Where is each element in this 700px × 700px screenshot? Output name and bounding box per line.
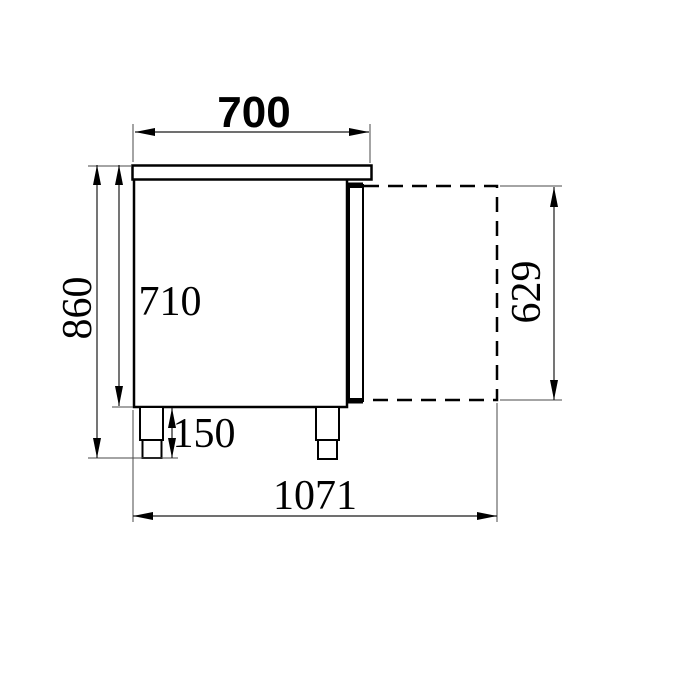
countertop (133, 166, 372, 180)
door-panel (349, 185, 363, 401)
right-leg-upper (316, 407, 339, 440)
dim-label-700: 700 (217, 88, 290, 137)
right-leg-foot (318, 440, 337, 459)
dim-label-629: 629 (504, 261, 550, 324)
left-leg (140, 407, 163, 458)
door-bottom-cap (348, 398, 363, 404)
dim-label-710: 710 (139, 279, 202, 325)
right-leg (316, 407, 339, 459)
left-leg-upper (140, 407, 163, 440)
dim-label-150: 150 (173, 411, 236, 457)
dim-label-1071: 1071 (273, 473, 357, 519)
door-swing-outline (364, 186, 497, 400)
dimension-drawing: 700 860 710 150 629 1071 (0, 0, 700, 700)
door-top-cap (348, 183, 363, 189)
technical-drawing-canvas: 700 860 710 150 629 1071 (0, 0, 700, 700)
left-leg-foot (143, 440, 162, 458)
dim-label-860: 860 (55, 277, 101, 340)
